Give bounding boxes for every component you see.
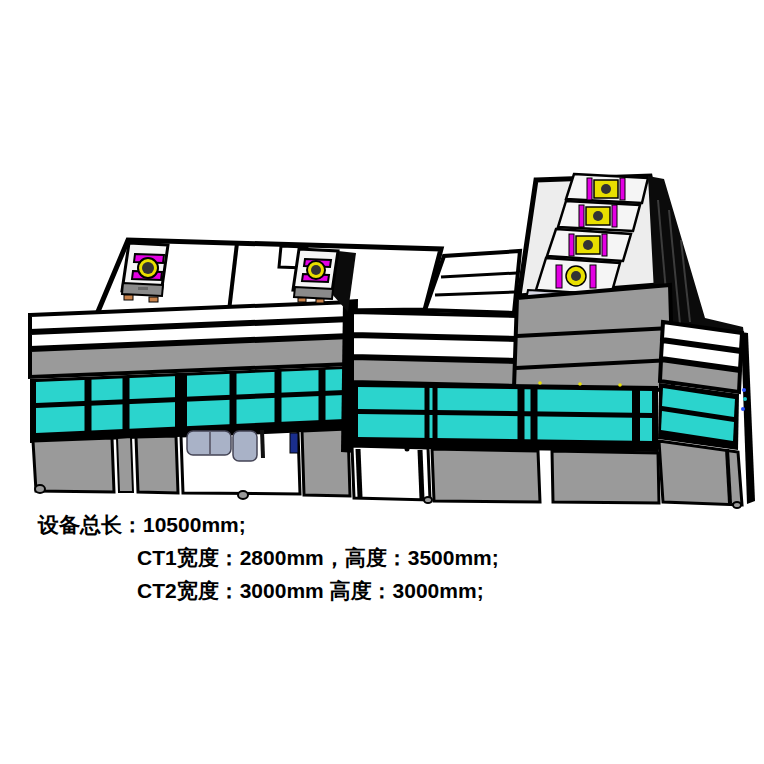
ffu-base [294,287,333,299]
dimension-note-ct1: CT1宽度：2800mm，高度：3500mm; [137,547,499,568]
ffu-bracket [556,265,562,288]
end-cap [741,332,755,504]
ct1-front-face [30,302,351,377]
signal-dot [743,397,747,401]
fan-icon [583,240,593,250]
bolt-dot [405,447,410,452]
right-wing [658,322,755,508]
ffu-foot [124,295,133,300]
fan-icon [311,265,321,275]
indicator-dot [618,383,622,387]
fan-icon [571,271,581,281]
leveling-foot [424,497,432,503]
door-panel [432,449,540,502]
equipment-module [233,431,257,461]
signal-dot [742,388,746,392]
ffu-bracket [602,234,607,256]
ffu-foot [149,297,158,302]
ct1-lower-panels [33,429,350,499]
ffu-bracket [612,205,617,227]
fan-icon [593,211,603,221]
fan-icon [601,184,611,194]
dimension-note-total-length: 设备总长：10500mm; [38,514,246,535]
window-row [358,414,652,441]
ffu-bracket [587,178,592,200]
door-panel [117,437,133,492]
door-panel [136,436,178,493]
window-row [358,387,652,413]
bay-post [262,430,263,458]
door-panel [552,451,659,503]
tower-front-face [514,285,673,390]
drawing-canvas: 设备总长：10500mm; CT1宽度：2800mm，高度：3500mm; CT… [0,0,764,764]
window-band-mid [352,381,658,452]
ffu-unit-1 [122,243,168,302]
door-panel [33,438,114,492]
ffu-unit-4 [558,201,640,231]
gray-band [352,358,519,386]
leveling-foot [733,502,741,508]
ffu-foot [316,299,324,303]
ffu-bracket [590,265,596,288]
frame-leg [358,449,360,497]
ffu-unit-3 [566,174,648,203]
ffu-foot [298,298,306,302]
ffu-label [138,287,148,290]
dimension-note-ct2: CT2宽度：3000mm 高度：3000mm; [137,580,484,601]
machine-illustration [0,0,764,764]
valve-module [290,433,298,453]
fan-icon [142,262,154,274]
ffu-bracket [579,205,584,227]
window-band-right [658,383,739,450]
fascia-strip [352,336,517,360]
leveling-foot [35,485,45,493]
ffu-bracket [569,234,574,256]
mid-lower-panels [352,446,659,503]
ffu-unit-5 [547,229,631,261]
indicator-dot [578,382,582,386]
indicator-dot [538,381,542,385]
signal-dot [741,407,745,411]
fascia-strip [352,312,517,338]
ffu-bracket [620,178,625,200]
leveling-foot [238,491,248,499]
frame-leg [420,450,422,499]
